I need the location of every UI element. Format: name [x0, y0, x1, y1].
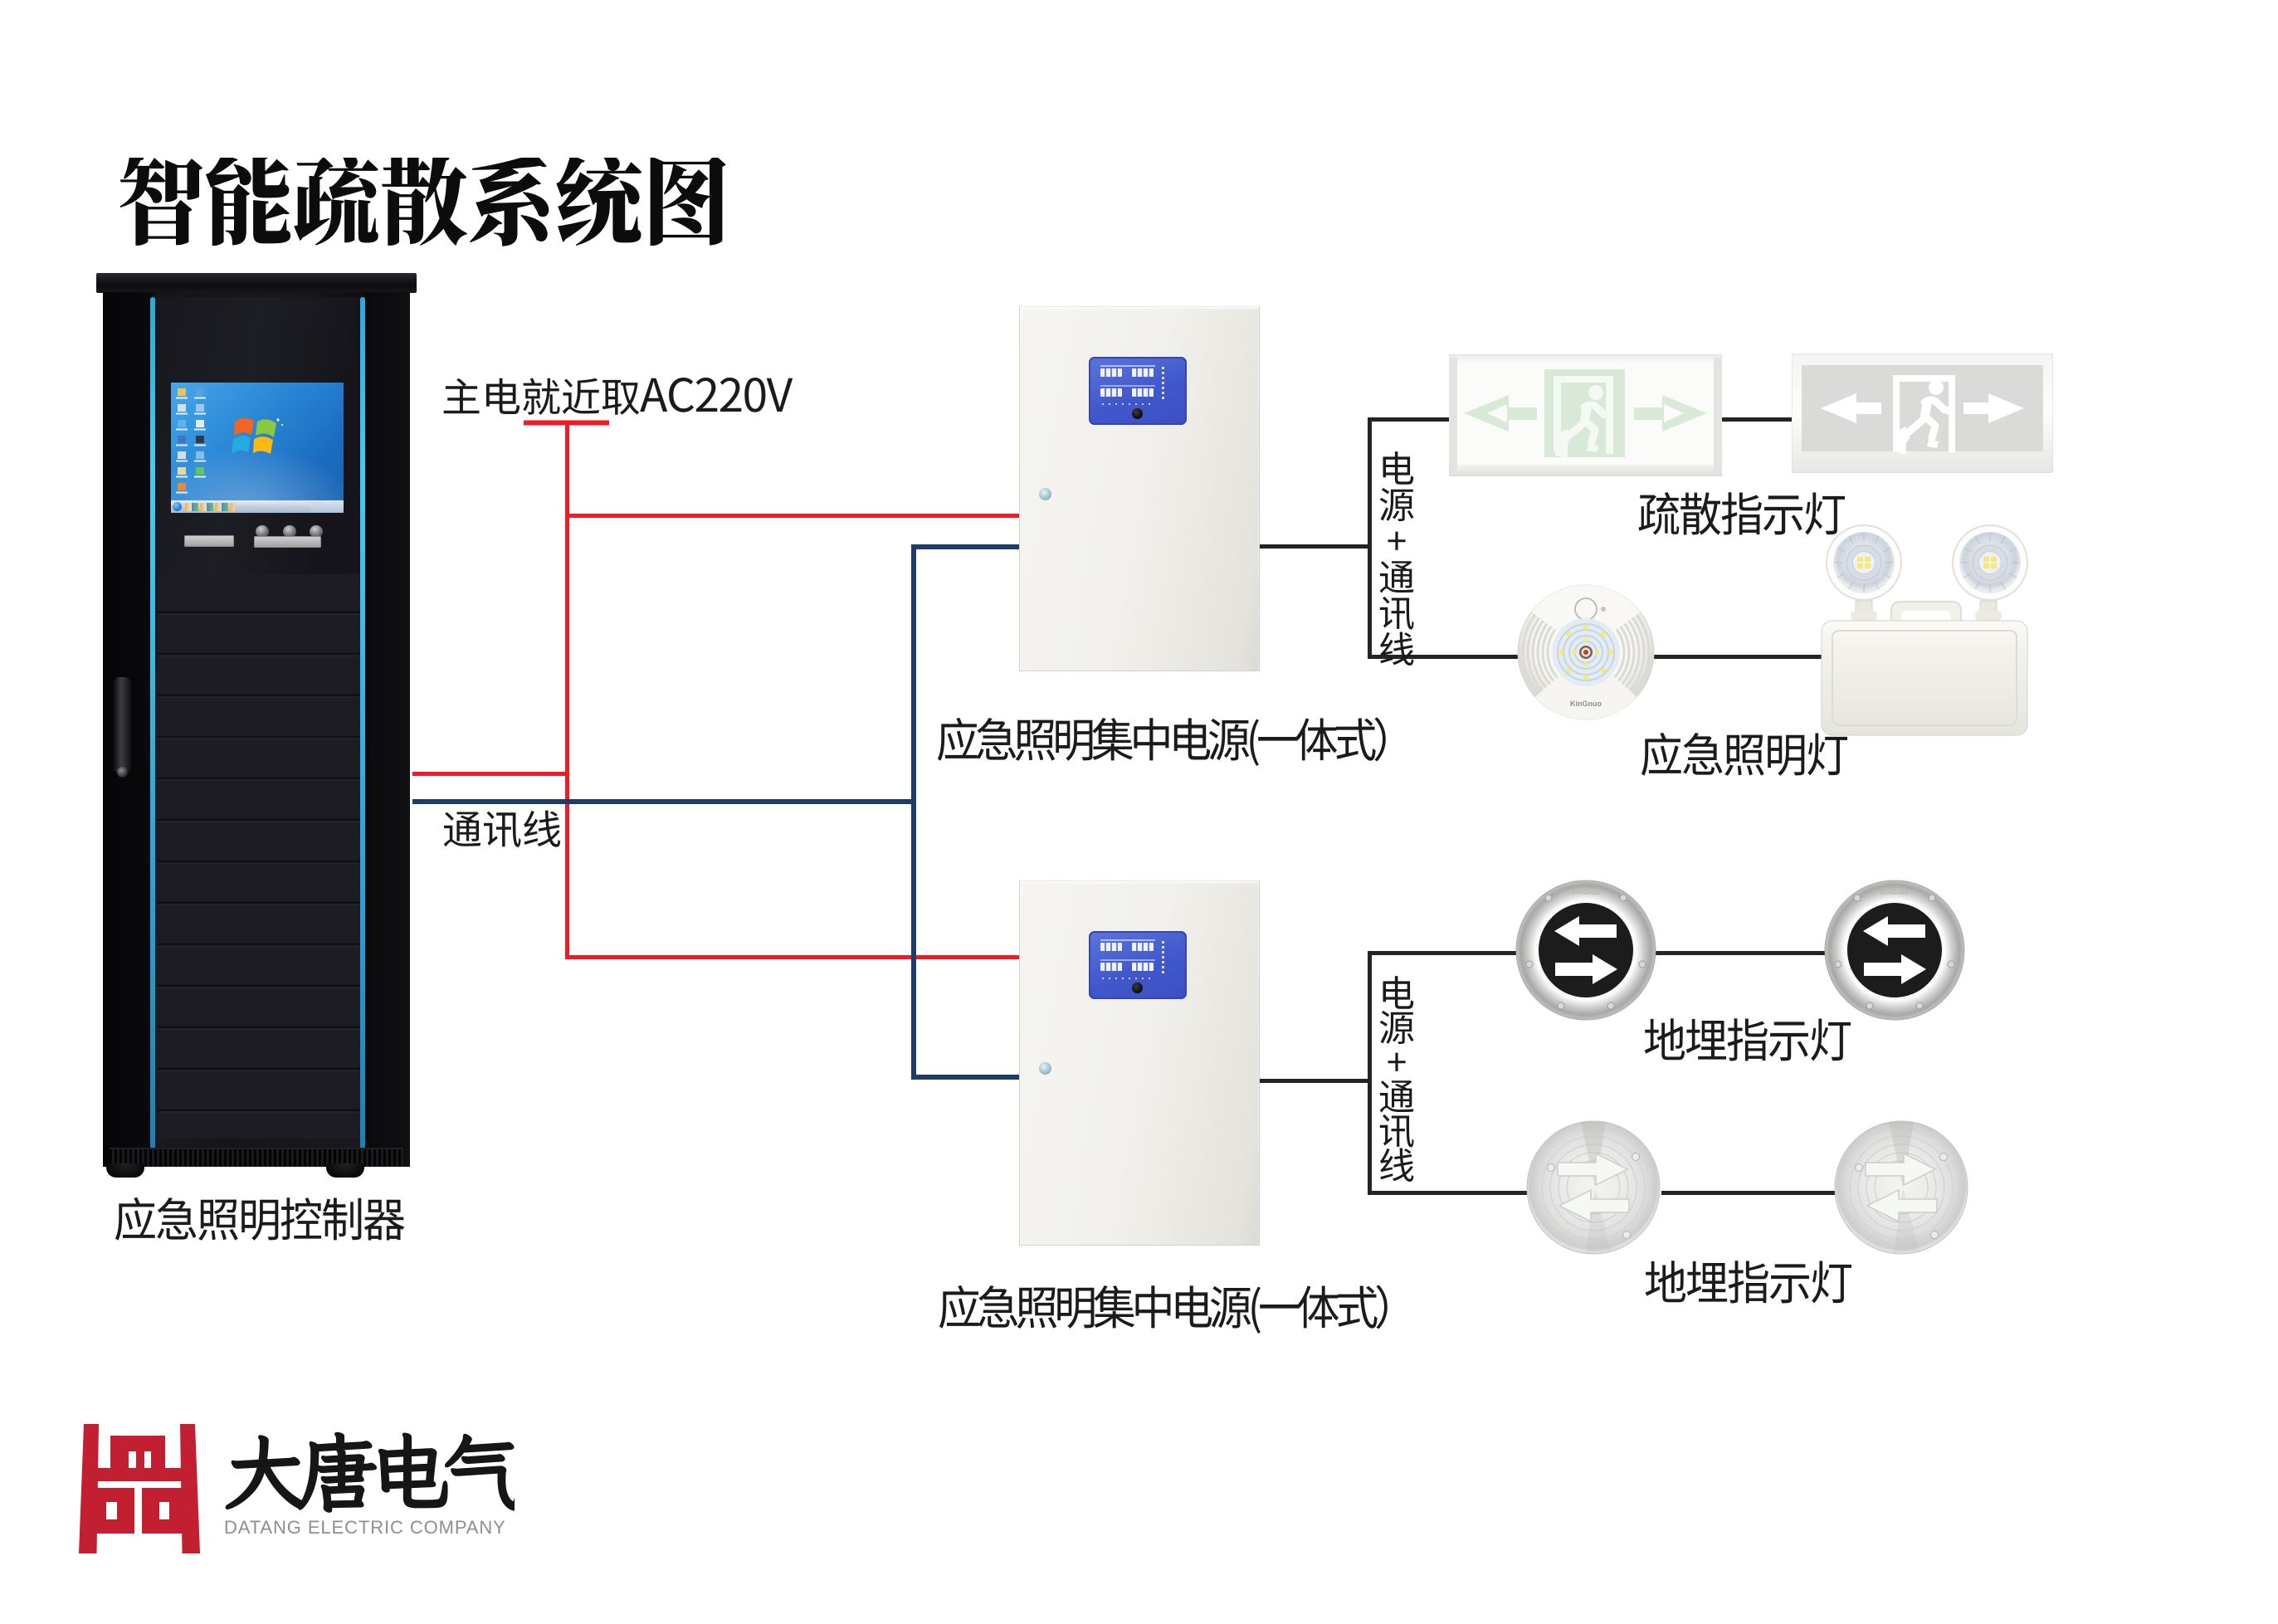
svg-text:KinGnuo: KinGnuo	[1880, 889, 1909, 896]
svg-text:KinGnuo: KinGnuo	[1572, 889, 1600, 896]
svg-text:KinGnuo: KinGnuo	[1570, 700, 1602, 708]
